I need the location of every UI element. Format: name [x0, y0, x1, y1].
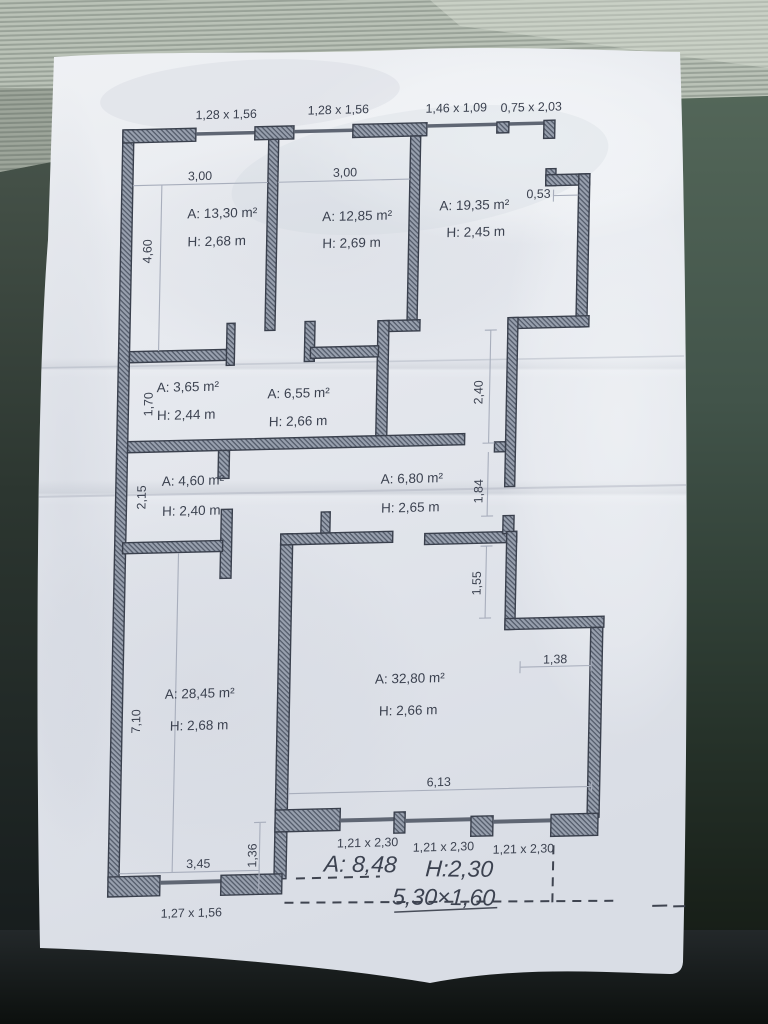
svg-text:5,30×1,60: 5,30×1,60 [392, 883, 496, 910]
svg-text:1,21 x 2,30: 1,21 x 2,30 [337, 835, 399, 850]
svg-text:2,15: 2,15 [134, 485, 148, 510]
svg-text:1,46 x 1,09: 1,46 x 1,09 [425, 100, 487, 115]
svg-text:H: 2,44 m: H: 2,44 m [157, 407, 216, 423]
svg-text:A: 8,48: A: 8,48 [321, 851, 397, 878]
svg-text:H: 2,68 m: H: 2,68 m [187, 233, 246, 249]
svg-text:A: 32,80 m²: A: 32,80 m² [375, 670, 446, 687]
svg-text:2,40: 2,40 [471, 380, 485, 405]
svg-text:3,00: 3,00 [188, 169, 212, 184]
svg-text:A: 6,55 m²: A: 6,55 m² [267, 385, 330, 402]
svg-text:H: 2,69 m: H: 2,69 m [322, 235, 381, 251]
svg-text:A: 6,80 m²: A: 6,80 m² [381, 470, 444, 487]
svg-text:H: 2,66 m: H: 2,66 m [379, 702, 438, 718]
svg-text:3,00: 3,00 [333, 165, 357, 180]
svg-text:H: 2,65 m: H: 2,65 m [381, 499, 440, 515]
svg-text:1,55: 1,55 [470, 571, 484, 596]
svg-text:1,36: 1,36 [245, 843, 259, 868]
svg-text:1,70: 1,70 [141, 392, 155, 417]
svg-text:7,10: 7,10 [129, 709, 143, 734]
svg-text:H: 2,68 m: H: 2,68 m [170, 717, 229, 733]
svg-text:1,21 x 2,30: 1,21 x 2,30 [413, 839, 475, 854]
svg-text:A: 19,35 m²: A: 19,35 m² [439, 197, 510, 214]
svg-text:6,13: 6,13 [427, 775, 451, 790]
svg-text:A: 12,85 m²: A: 12,85 m² [322, 207, 393, 224]
svg-text:H: 2,45 m: H: 2,45 m [446, 224, 505, 240]
svg-text:H: 2,40 m: H: 2,40 m [162, 502, 221, 518]
svg-text:A: 4,60 m²: A: 4,60 m² [162, 472, 225, 489]
svg-text:3,45: 3,45 [186, 857, 210, 872]
svg-text:0,53: 0,53 [526, 187, 550, 202]
svg-text:1,84: 1,84 [471, 479, 485, 504]
svg-text:1,28 x 1,56: 1,28 x 1,56 [195, 107, 257, 122]
svg-text:A: 13,30 m²: A: 13,30 m² [187, 205, 258, 222]
svg-text:A: 3,65 m²: A: 3,65 m² [157, 379, 220, 396]
svg-text:1,38: 1,38 [543, 652, 567, 667]
svg-text:1,27 x 1,56: 1,27 x 1,56 [161, 905, 223, 920]
svg-text:1,28 x 1,56: 1,28 x 1,56 [308, 102, 370, 117]
svg-text:H: 2,66 m: H: 2,66 m [269, 413, 328, 429]
svg-text:0,75 x 2,03: 0,75 x 2,03 [500, 99, 562, 114]
svg-text:1,21 x 2,30: 1,21 x 2,30 [493, 841, 555, 856]
svg-text:4,60: 4,60 [140, 239, 154, 264]
svg-text:A: 28,45 m²: A: 28,45 m² [165, 685, 236, 702]
svg-text:H:2,30: H:2,30 [425, 855, 494, 882]
